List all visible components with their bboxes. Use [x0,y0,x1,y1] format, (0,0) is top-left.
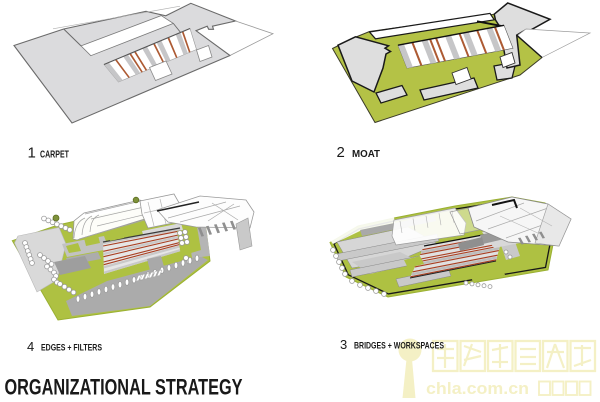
svg-text:3: 3 [340,337,347,352]
svg-text:4: 4 [27,339,34,354]
svg-text:CARPET: CARPET [40,150,69,161]
svg-text:ORGANIZATIONAL STRATEGY: ORGANIZATIONAL STRATEGY [5,375,243,400]
svg-text:1: 1 [28,145,36,162]
svg-text:BRIDGES + WORKSPACES: BRIDGES + WORKSPACES [354,341,444,351]
svg-text:2: 2 [337,144,345,161]
svg-text:EDGES + FILTERS: EDGES + FILTERS [41,343,102,353]
svg-text:chla.com.cn: chla.com.cn [426,380,529,398]
svg-text:MOAT: MOAT [352,149,380,160]
